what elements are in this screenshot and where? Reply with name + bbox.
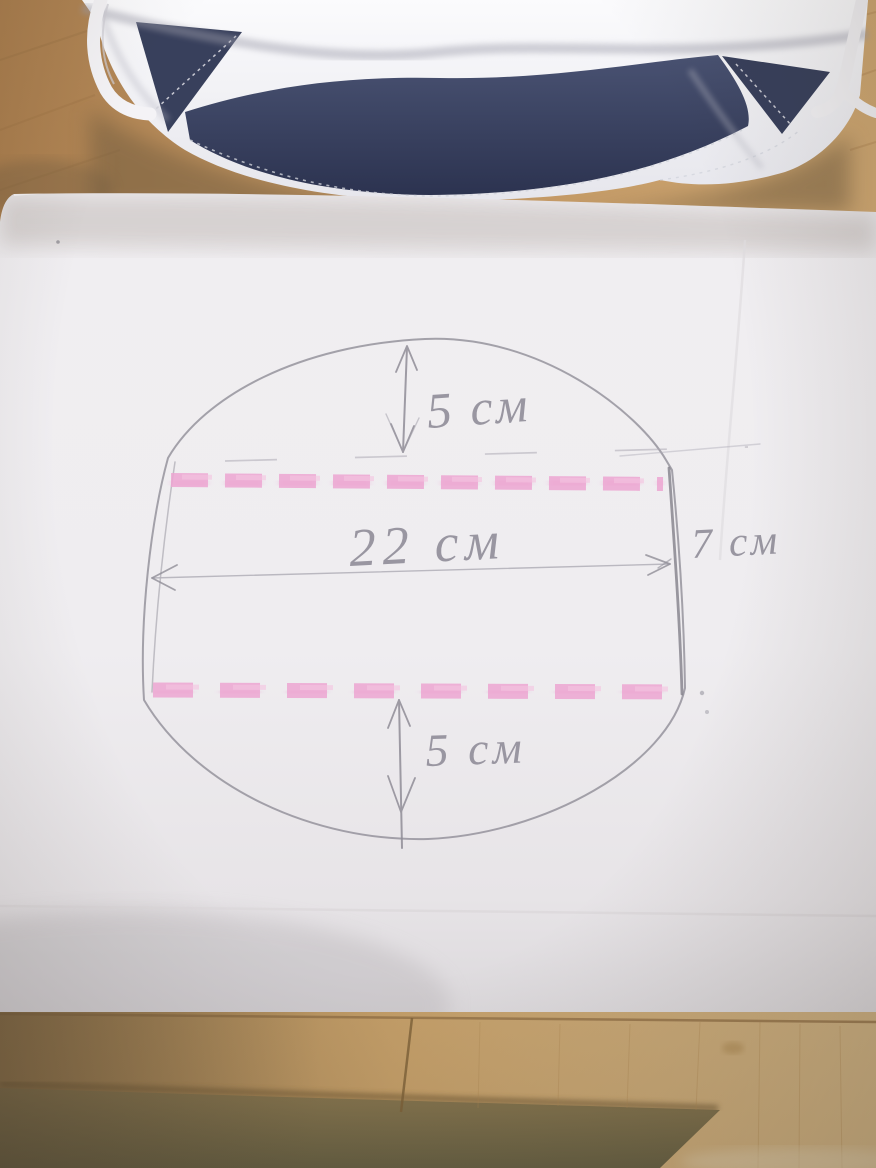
wooden-table-bottom [0,1012,876,1168]
pattern-paper [0,191,876,1100]
label-bottom-5cm: 5 см [425,722,527,776]
label-side-7cm: 7 см [690,517,781,568]
photo-of-sewing-pattern: 5 см 22 см 7 см 5 см [0,0,876,1168]
label-top-5cm: 5 см [425,376,532,439]
table-left-shadow [0,1012,320,1168]
wood-knot [722,1042,744,1054]
stray-pencil-dot [705,710,709,714]
paper-sheet [0,193,876,1022]
label-width-22cm: 22 см [347,510,506,578]
paper-speck [56,240,60,244]
